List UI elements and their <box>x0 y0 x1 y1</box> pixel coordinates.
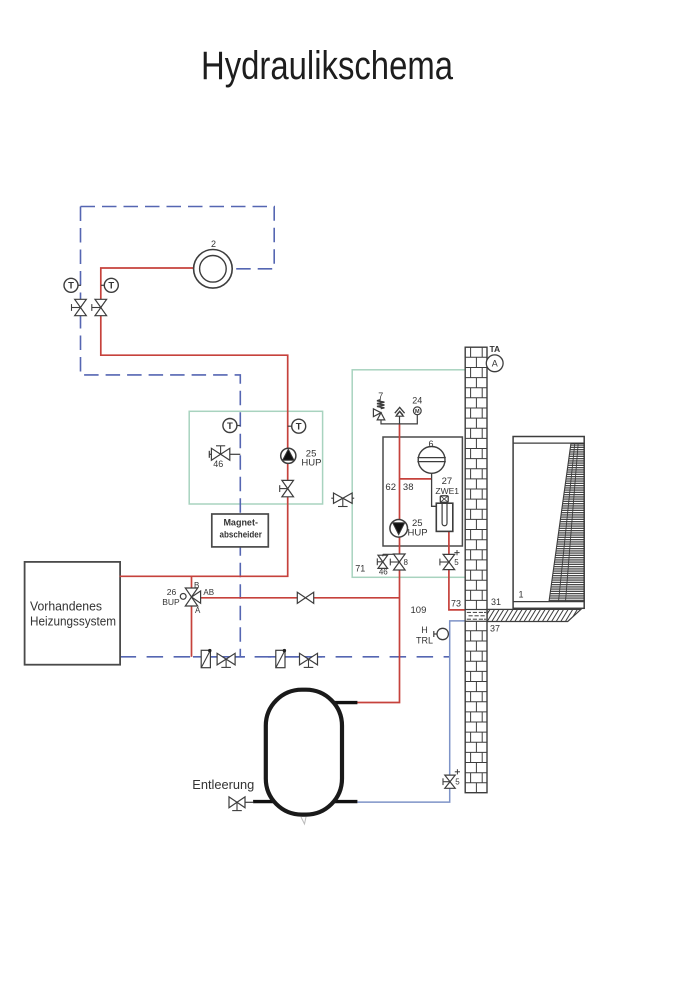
svg-text:M: M <box>415 409 420 415</box>
svg-text:AB: AB <box>203 588 214 597</box>
svg-text:46: 46 <box>213 459 223 469</box>
svg-text:T: T <box>108 281 114 292</box>
svg-text:T: T <box>296 422 302 433</box>
svg-text:HUP: HUP <box>301 457 321 468</box>
svg-text:BUP: BUP <box>162 597 180 607</box>
svg-text:46: 46 <box>379 567 388 576</box>
svg-text:Magnet-: Magnet- <box>223 517 258 527</box>
svg-text:1: 1 <box>518 590 523 600</box>
svg-text:71: 71 <box>355 563 365 573</box>
svg-text:37: 37 <box>490 624 500 634</box>
svg-text:26: 26 <box>167 587 177 597</box>
svg-text:TA: TA <box>490 344 501 354</box>
svg-text:abscheider: abscheider <box>220 529 263 539</box>
svg-text:B: B <box>194 581 199 590</box>
svg-text:Heizungssystem: Heizungssystem <box>30 614 116 629</box>
svg-text:H: H <box>421 625 428 635</box>
svg-text:A: A <box>492 359 498 369</box>
svg-text:6: 6 <box>428 439 433 449</box>
svg-text:Vorhandenes: Vorhandenes <box>30 598 102 613</box>
svg-text:Entleerung: Entleerung <box>192 777 254 792</box>
svg-text:T: T <box>68 281 74 292</box>
svg-text:5: 5 <box>454 558 459 567</box>
svg-text:Hydraulikschema: Hydraulikschema <box>201 44 454 88</box>
svg-text:TRL: TRL <box>416 636 433 646</box>
svg-text:73: 73 <box>451 598 461 608</box>
svg-text:38: 38 <box>403 482 414 493</box>
svg-text:7: 7 <box>378 391 383 401</box>
svg-text:31: 31 <box>491 597 501 607</box>
svg-text:8: 8 <box>404 558 409 567</box>
svg-text:109: 109 <box>411 605 427 616</box>
svg-text:HUP: HUP <box>408 527 428 538</box>
svg-text:A: A <box>195 606 201 615</box>
svg-text:2: 2 <box>211 239 216 249</box>
svg-text:5: 5 <box>455 778 460 787</box>
svg-text:62: 62 <box>385 482 396 493</box>
svg-text:ZWE1: ZWE1 <box>435 486 459 496</box>
svg-text:24: 24 <box>412 395 422 405</box>
svg-text:T: T <box>227 421 233 432</box>
